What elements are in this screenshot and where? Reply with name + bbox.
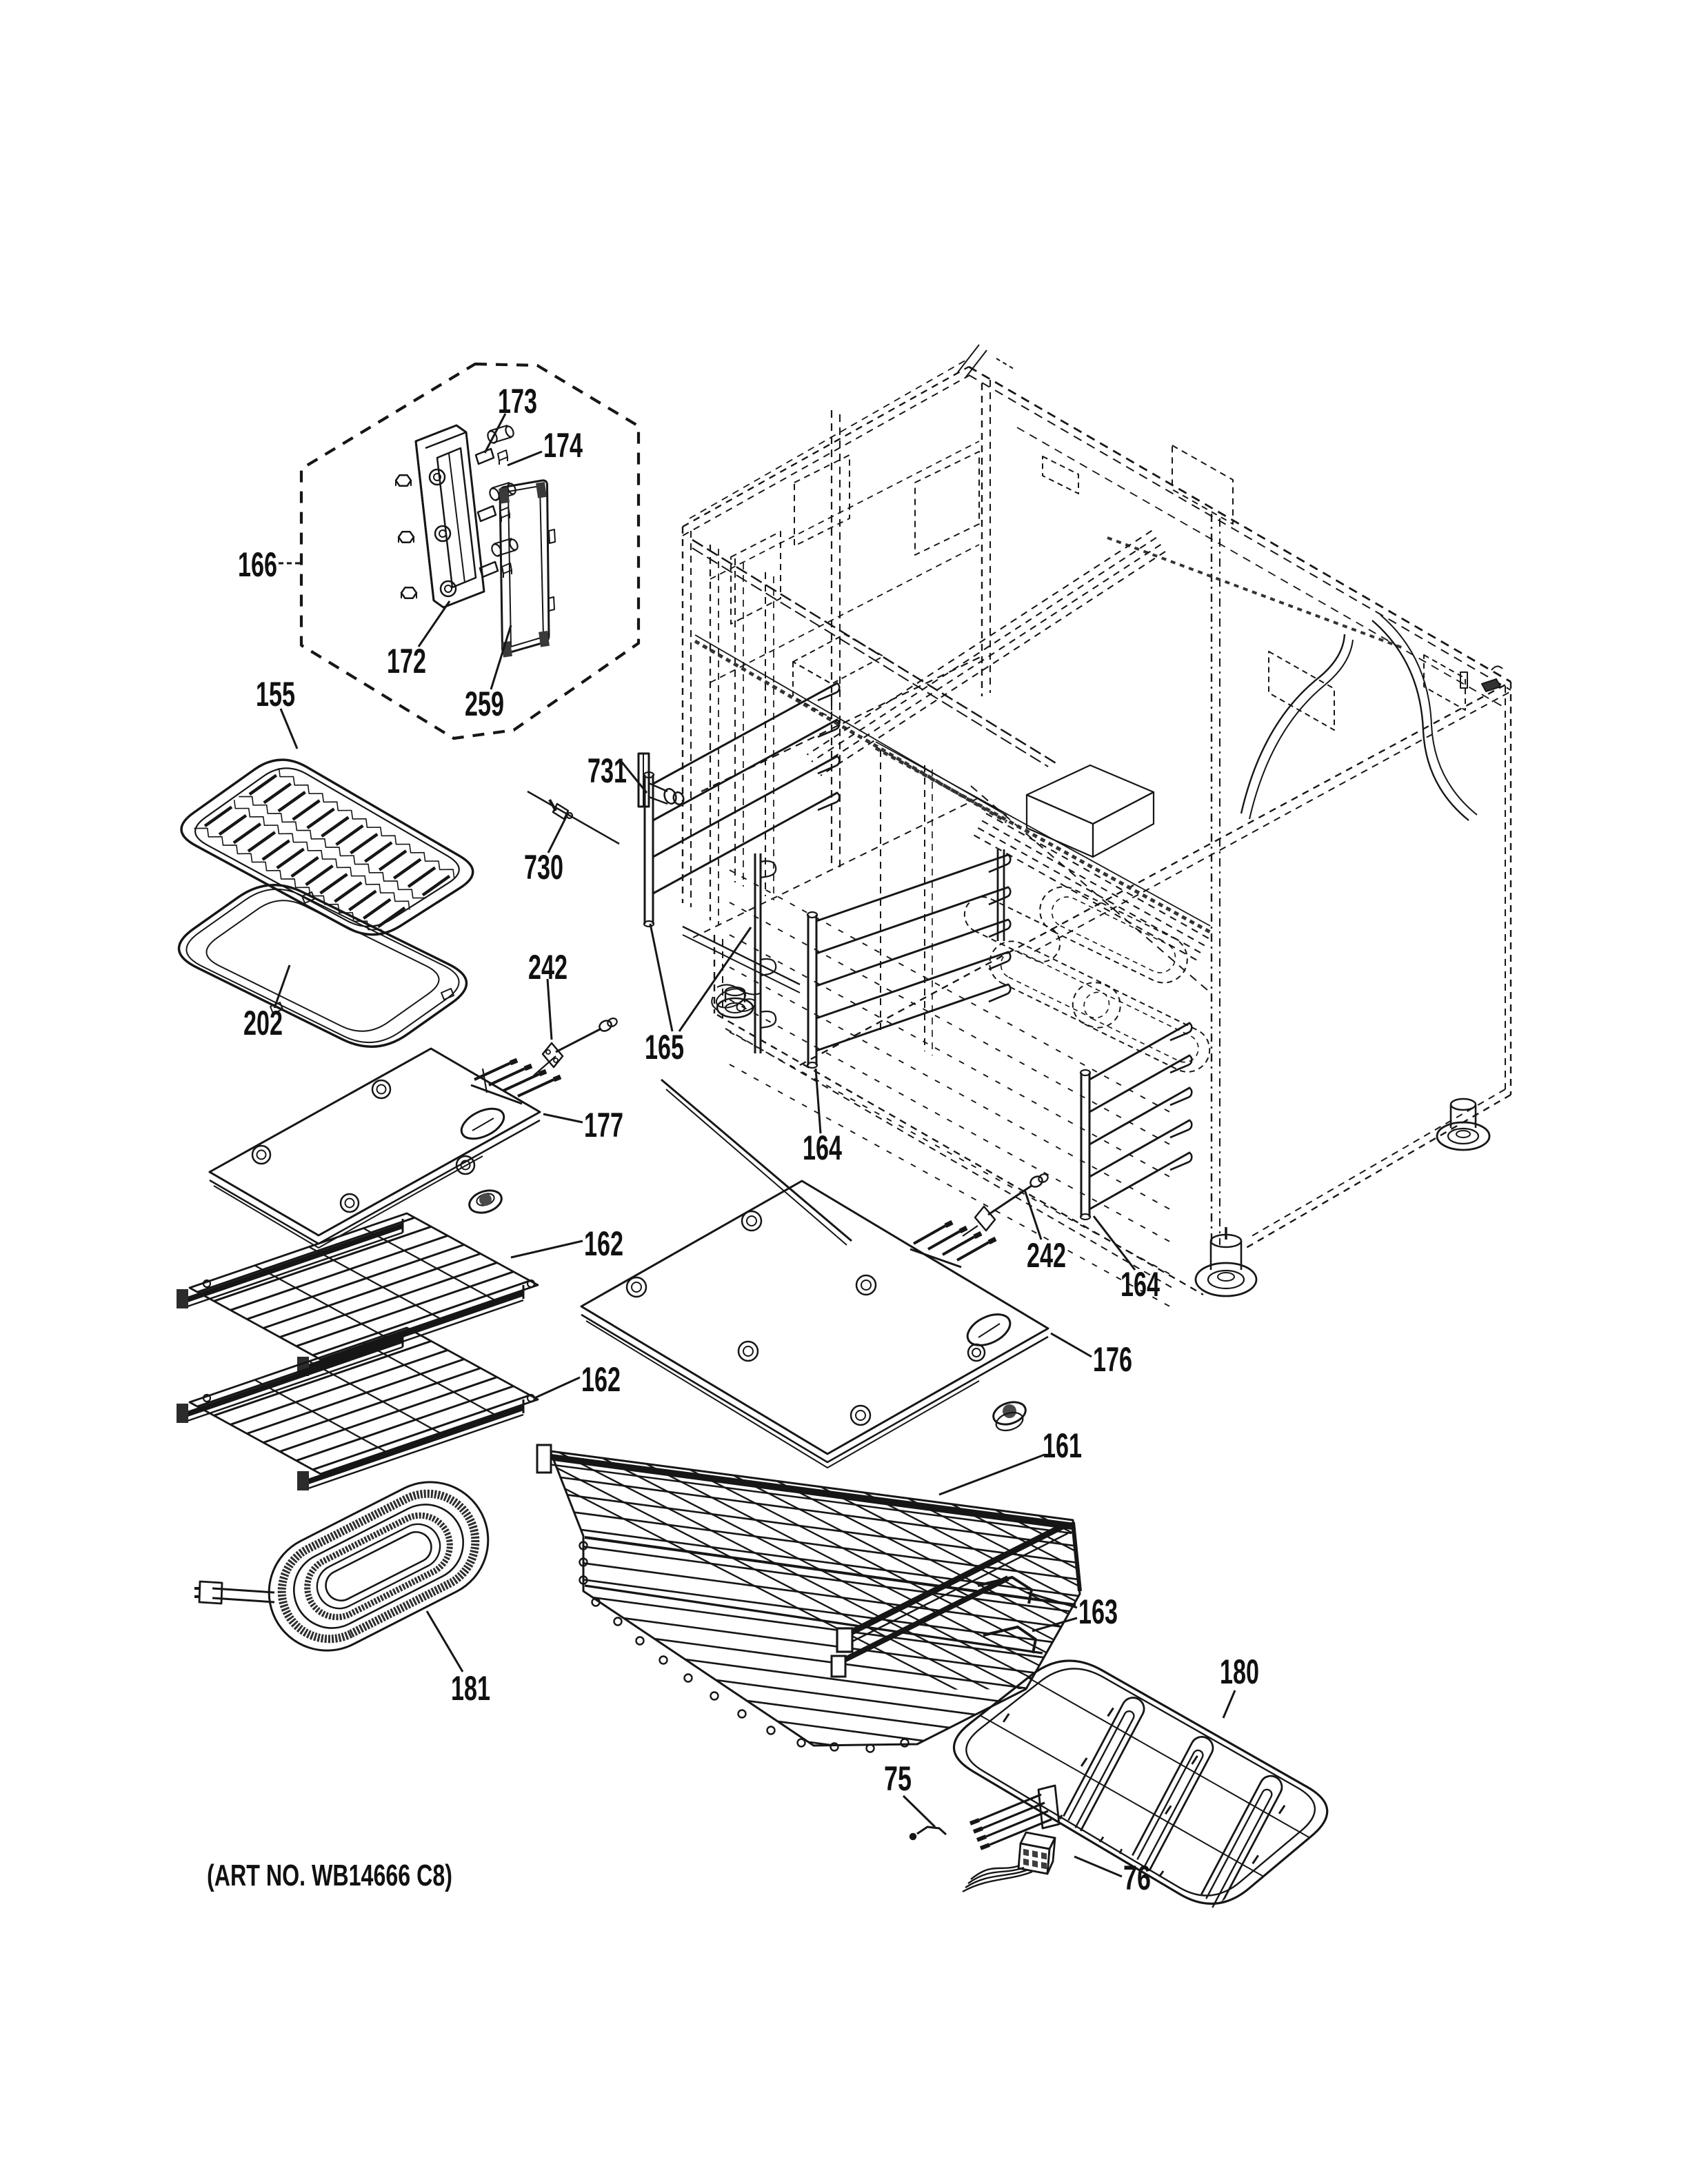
svg-text:242: 242 [1027,1236,1066,1275]
svg-text:202: 202 [243,1004,283,1042]
svg-text:176: 176 [1093,1340,1132,1379]
svg-text:164: 164 [803,1129,842,1167]
svg-text:181: 181 [451,1669,490,1708]
svg-text:76: 76 [1123,1859,1151,1897]
svg-text:75: 75 [884,1759,912,1798]
svg-text:162: 162 [584,1224,623,1263]
svg-text:162: 162 [581,1360,621,1399]
svg-text:174: 174 [543,426,583,465]
svg-text:172: 172 [387,642,426,680]
svg-text:180: 180 [1220,1652,1259,1691]
svg-text:730: 730 [524,848,563,887]
svg-text:161: 161 [1043,1426,1082,1465]
svg-text:(ART NO. WB14666 C8): (ART NO. WB14666 C8) [207,1859,452,1892]
svg-text:177: 177 [584,1106,623,1144]
svg-text:259: 259 [465,685,504,723]
svg-text:163: 163 [1078,1593,1118,1631]
svg-text:164: 164 [1121,1265,1160,1304]
svg-text:155: 155 [256,675,295,714]
svg-text:165: 165 [645,1028,684,1066]
svg-text:166: 166 [238,545,277,584]
svg-text:731: 731 [587,751,627,790]
